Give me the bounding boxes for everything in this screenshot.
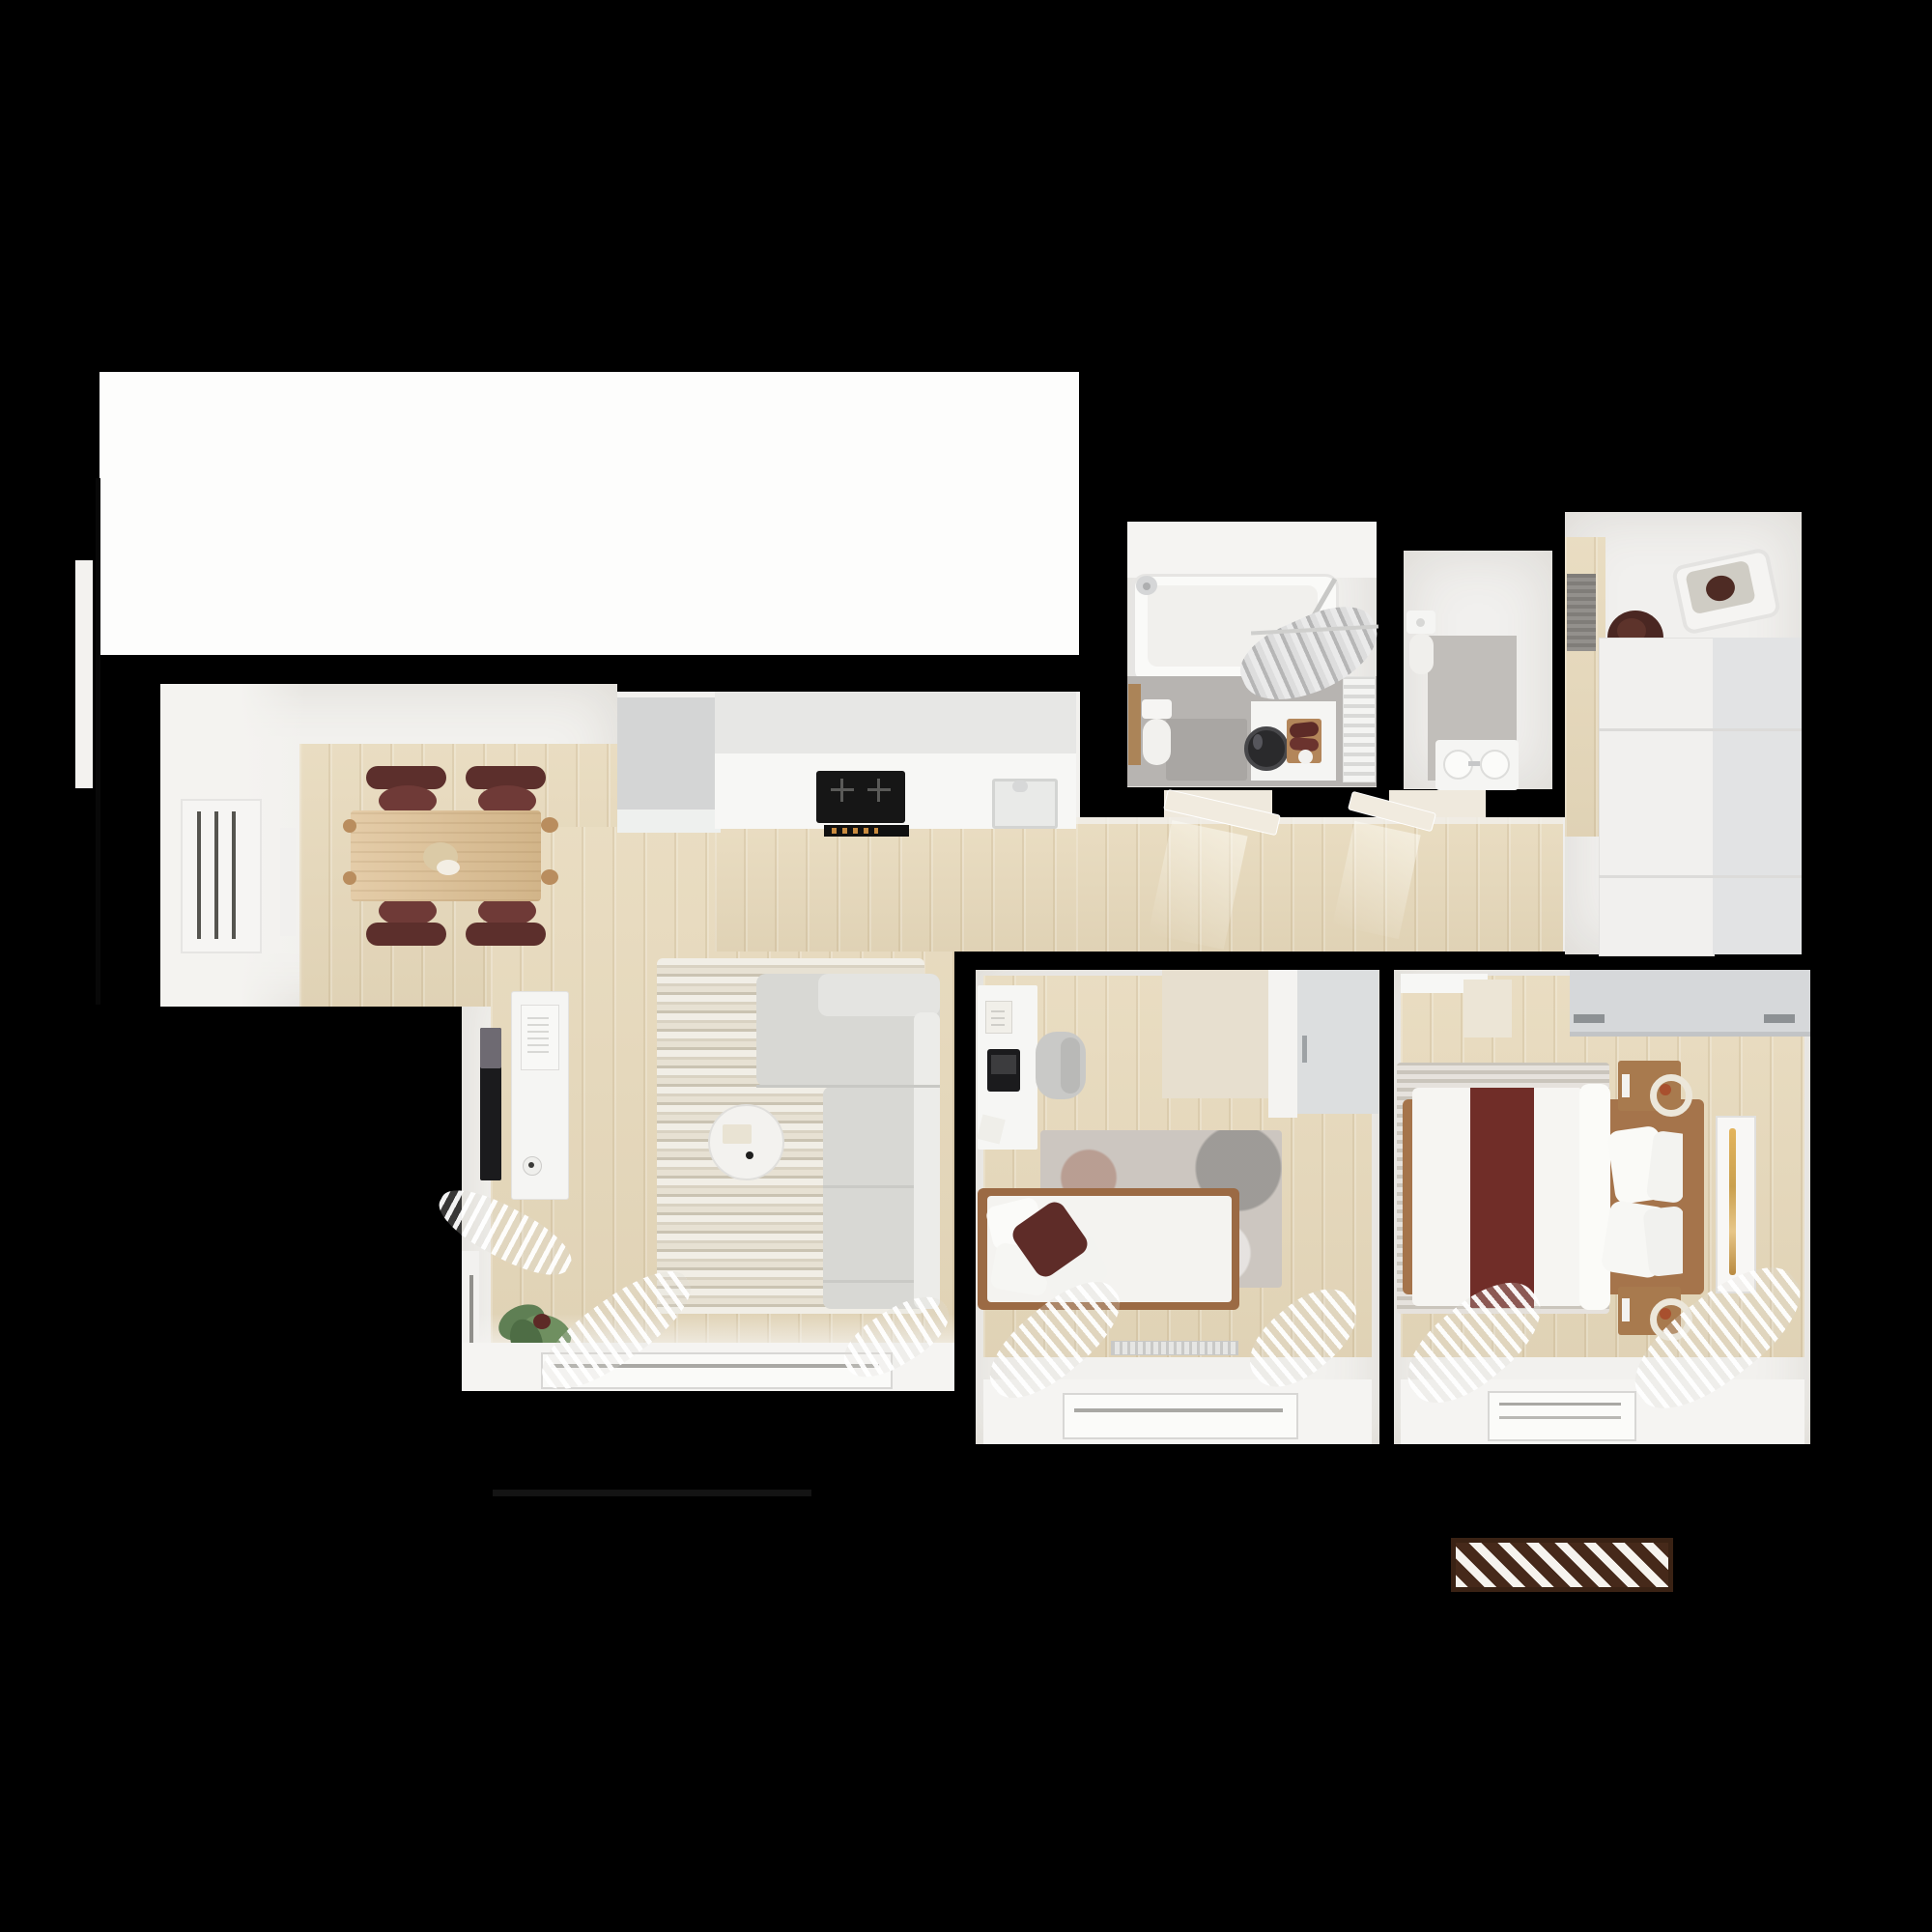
master-cream-cabinet	[1463, 980, 1512, 1037]
balcony-side-panel	[280, 828, 296, 936]
nightstand-top-slot	[1622, 1074, 1630, 1097]
nightstand-bottom-slot	[1622, 1298, 1630, 1321]
wardrobe-mat	[1567, 574, 1596, 651]
sofa-seam-chaise	[756, 1085, 940, 1088]
corridor-threshold	[1076, 817, 1563, 824]
plant-pot	[533, 1314, 551, 1329]
kids-chair-back	[1061, 1037, 1080, 1094]
kitchen-upper-band	[715, 692, 1076, 755]
kitchen-cabinet-base	[617, 810, 721, 833]
cooktop	[816, 771, 905, 823]
sofa-seam-1	[823, 1185, 914, 1188]
wc-faucet	[1468, 761, 1480, 766]
dining-chair-br-back	[466, 923, 546, 946]
wc-toilet-bowl	[1409, 634, 1434, 674]
master-headboard	[1683, 1109, 1702, 1294]
kids-wardrobe-gray	[1297, 970, 1378, 1114]
cooktop-knobs	[832, 828, 878, 834]
art-gold-stripe	[1729, 1128, 1736, 1275]
wardrobe-unit-left	[1599, 638, 1715, 956]
kitchen-floor	[715, 827, 1076, 952]
kids-wardrobe-beige	[1162, 970, 1268, 1098]
kitchen-faucet	[1012, 781, 1028, 792]
master-glass-line-2	[1499, 1416, 1621, 1419]
kids-laptop-keys	[991, 1055, 1016, 1074]
master-side-fold	[1579, 1084, 1610, 1310]
bathroom-toilet-bowl	[1143, 719, 1171, 765]
master-closet-rail	[1570, 1032, 1810, 1037]
wardrobe-seam-2	[1599, 875, 1802, 878]
chair-armrest-knob-3	[343, 819, 356, 833]
balcony-door-glass-2	[214, 811, 218, 939]
balcony-door-glass-1	[197, 811, 201, 939]
bathroom-rug	[1166, 719, 1247, 781]
bathroom-toilet-tank	[1142, 699, 1172, 719]
kids-desk-book-text	[991, 1007, 1005, 1026]
kids-wardrobe-white	[1268, 970, 1297, 1118]
kids-wardrobe-handle	[1302, 1036, 1307, 1063]
kids-window-frame	[1063, 1393, 1298, 1439]
balcony-outer-strip	[75, 560, 93, 788]
master-runner	[1470, 1088, 1534, 1308]
wardrobe-unit-right	[1713, 638, 1802, 954]
master-closet	[1570, 970, 1810, 1034]
towel-radiator	[1343, 676, 1376, 782]
washing-machine-drum	[1244, 726, 1289, 771]
master-closet-handle-right	[1764, 1014, 1795, 1023]
cooktop-burner-1v	[840, 779, 843, 802]
master-glass-line-1	[1499, 1403, 1621, 1406]
wc-toilet-button	[1416, 618, 1425, 627]
tv-screen-glint	[480, 1028, 501, 1068]
sideboard-box-text	[527, 1014, 549, 1053]
outer-sill-line	[493, 1490, 811, 1496]
lamp-top-dot	[1660, 1084, 1671, 1095]
chair-armrest-knob-4	[343, 871, 356, 885]
balcony-door-frame	[181, 799, 262, 953]
chair-armrest-knob-1	[541, 817, 558, 833]
master-closet-handle-left	[1574, 1014, 1605, 1023]
entrance-doormat	[1451, 1538, 1673, 1592]
kids-radiator	[1111, 1341, 1238, 1355]
sofa-seam-2	[823, 1280, 914, 1283]
sofa-chaise-back-cushion	[818, 974, 940, 1016]
table-centerpiece-dish	[437, 860, 460, 875]
chair-armrest-knob-2	[541, 869, 558, 885]
master-wall-art	[1716, 1116, 1756, 1293]
plan-left-edge-line	[96, 478, 100, 1005]
lamp-bottom-dot	[1660, 1308, 1671, 1320]
bath-tray-jar	[1298, 750, 1313, 764]
dining-chair-bl-back	[366, 923, 446, 946]
kids-glass-line	[1074, 1408, 1283, 1412]
bathroom-wall-band	[1127, 522, 1377, 578]
wc-sink-2	[1480, 750, 1510, 780]
sideboard-knob-dot	[528, 1162, 534, 1168]
washer-drum-glint	[1253, 734, 1263, 750]
tub-faucet-dot	[1143, 582, 1151, 590]
coffee-table-book	[723, 1124, 752, 1144]
floor-plan-canvas	[0, 0, 1932, 1932]
coffee-table-dot	[746, 1151, 753, 1159]
lamp-top-ring	[1650, 1074, 1692, 1117]
cooktop-burner-2v	[877, 779, 880, 802]
toilet-wood-shelf	[1128, 684, 1141, 765]
render-backdrop	[99, 372, 1079, 655]
balcony-door-glass-3	[232, 811, 236, 939]
kitchen-tall-cabinet	[617, 697, 715, 811]
sofa-back-band	[914, 1012, 940, 1309]
wardrobe-seam-1	[1599, 728, 1802, 731]
